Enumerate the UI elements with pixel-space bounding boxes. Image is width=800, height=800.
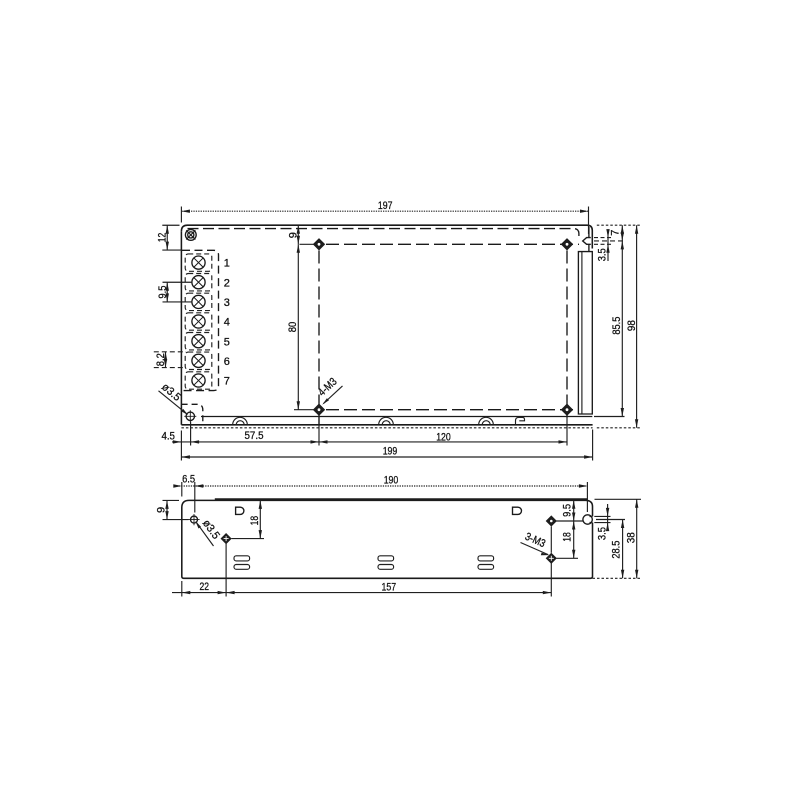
svg-text:199: 199 — [383, 446, 398, 458]
svg-text:2: 2 — [224, 277, 230, 289]
svg-text:3.5: 3.5 — [597, 248, 609, 261]
svg-text:190: 190 — [384, 474, 399, 486]
svg-text:157: 157 — [382, 581, 397, 593]
svg-text:28.5: 28.5 — [610, 541, 622, 559]
svg-text:9.5: 9.5 — [157, 286, 169, 299]
svg-text:9.5: 9.5 — [562, 504, 574, 517]
svg-text:8.2: 8.2 — [155, 353, 167, 366]
svg-text:85.5: 85.5 — [611, 317, 623, 335]
svg-text:4.5: 4.5 — [161, 430, 175, 442]
svg-text:7: 7 — [224, 376, 230, 388]
svg-text:18: 18 — [249, 516, 261, 526]
svg-text:38: 38 — [626, 532, 638, 543]
svg-text:120: 120 — [436, 431, 451, 443]
svg-text:18: 18 — [562, 532, 574, 542]
svg-text:98: 98 — [626, 320, 638, 331]
svg-text:80: 80 — [287, 322, 299, 333]
svg-text:3.5: 3.5 — [597, 527, 609, 540]
svg-text:3: 3 — [224, 297, 230, 309]
svg-text:1: 1 — [224, 258, 230, 270]
svg-text:22: 22 — [200, 581, 210, 593]
svg-text:9: 9 — [288, 232, 300, 238]
svg-text:6.5: 6.5 — [182, 474, 195, 486]
svg-text:12: 12 — [157, 233, 169, 243]
svg-text:4: 4 — [224, 317, 230, 329]
svg-text:57.5: 57.5 — [245, 430, 264, 442]
svg-text:6: 6 — [224, 356, 230, 368]
svg-text:5: 5 — [224, 336, 230, 348]
svg-text:197: 197 — [378, 200, 393, 212]
svg-text:7: 7 — [610, 230, 622, 236]
svg-text:9: 9 — [156, 507, 168, 513]
